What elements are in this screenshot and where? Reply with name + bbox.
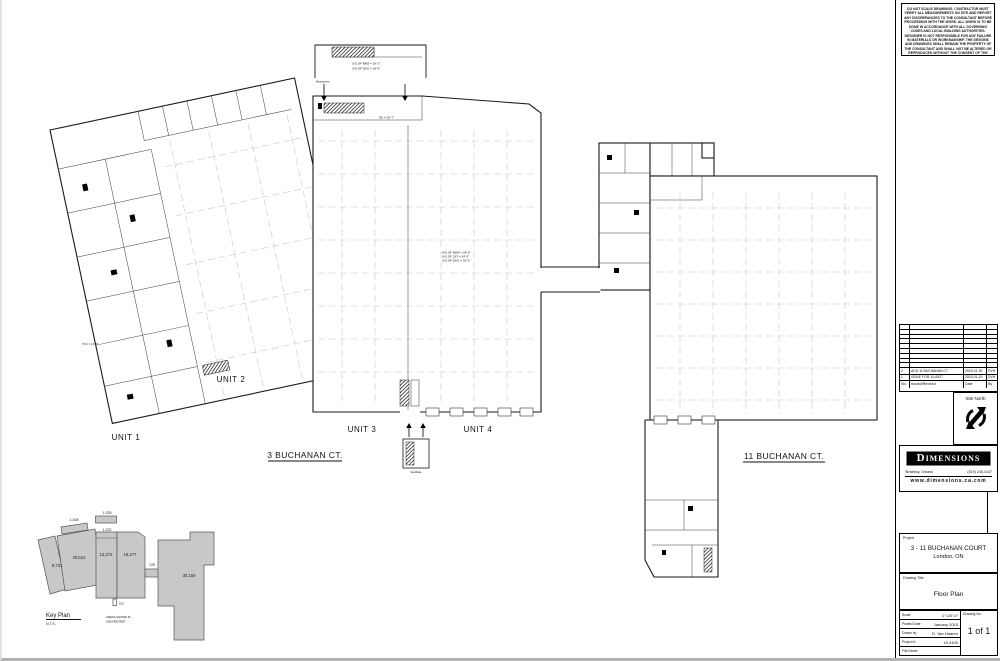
info-row-drawn: Drawn by D. Van Haaren — [900, 629, 960, 638]
area-mezz-a: 1,408 — [70, 518, 79, 522]
area-unit4: 19,477 — [124, 552, 137, 557]
scale-figure-icon — [113, 599, 117, 606]
project-label: Project — [903, 536, 994, 540]
building-11-buchanan — [599, 143, 877, 577]
drawing-title-box: Drawing Title Floor Plan — [899, 573, 998, 610]
revisions-header-no: No. — [900, 381, 909, 388]
mezzanine-note-1: U/S OF BMS = 19'-2" — [352, 62, 380, 66]
info-row-file: File Name — [900, 647, 960, 655]
areas-note-line2: SQUARE FEET — [106, 620, 126, 624]
firm-phone: (519) 245-4147 — [967, 470, 992, 474]
info-row-project-no: Project # 15-4100 — [900, 638, 960, 647]
unit3-label: UNIT 3 — [348, 425, 377, 434]
project-no-value: 15-4100 — [943, 640, 958, 645]
plotted-label: Plotted Date — [902, 622, 921, 626]
key-plan-title: Key Plan — [46, 613, 70, 619]
info-row-scale: Scale 1"=20'-0" — [900, 611, 960, 620]
info-row-plotted: Plotted Date January 2015 — [900, 620, 960, 629]
area-mezz-b: 1,035 — [103, 511, 112, 515]
mezzanine-note-2: U/S OF DKG = 18'-0" — [352, 67, 380, 71]
scale-figure-label: 150 — [119, 602, 124, 606]
firm-city: Strathroy, Ontario — [905, 470, 933, 474]
mezzanine-detail: U/S OF BMS = 19'-2" U/S OF DKG = 18'-0" … — [315, 45, 426, 101]
address-3-buchanan: 3 BUCHANAN CT. — [267, 450, 343, 460]
disclaimer-box: DO NOT SCALE DRAWINGS. CONTRACTOR MUST V… — [901, 3, 995, 56]
joist-note: TOJ = 16'-7" — [82, 342, 99, 346]
area-building11: 30,159 — [183, 573, 196, 578]
vestibule-label: Vestibule — [410, 470, 422, 474]
revisions-header-by: By — [986, 381, 997, 388]
project-name: 3 - 11 BUCHANAN COURT — [903, 545, 994, 552]
revisions-header-issued: Issued/Revised — [909, 381, 963, 388]
key-plan: 8,731 20,624 13,372 19,477 725 30,159 1,… — [38, 511, 214, 640]
area-unit3: 13,372 — [100, 552, 113, 557]
mezzanine-label: Mezzanine — [316, 80, 330, 84]
info-table: Scale 1"=20'-0" Plotted Date January 201… — [899, 610, 998, 656]
titleblock-edge-line — [987, 490, 988, 534]
drawing-no-value: 1 of 1 — [961, 626, 997, 636]
drawing-sheet: U/S OF BMS = 19'-2" U/S OF DKG = 18'-0" … — [0, 0, 1000, 661]
revisions-table: 2 ADD 11 BUCHANAN CT 2015-01-30 DVH 1 IS… — [899, 324, 998, 392]
scale-value: 1"=20'-0" — [942, 613, 958, 618]
floor-plan-drawing: U/S OF BMS = 19'-2" U/S OF DKG = 18'-0" … — [2, 0, 895, 661]
project-box: Project 3 - 11 BUCHANAN COURT London, ON — [899, 533, 998, 573]
revisions-header-date: Date — [963, 381, 986, 388]
key-plan-scale: N.T.S. — [46, 622, 56, 626]
project-no-label: Project # — [902, 640, 915, 644]
firm-logo-box: Dimensions Strathroy, Ontario (519) 245-… — [899, 445, 998, 492]
revisions-header-row: No. Issued/Revised Date By — [900, 380, 997, 388]
area-mezz-c: 1,022 — [103, 528, 112, 532]
drawn-label: Drawn by — [902, 631, 916, 635]
unit1-label: UNIT 1 — [112, 433, 141, 442]
plotted-value: January 2015 — [934, 622, 958, 627]
file-label: File Name — [902, 649, 917, 653]
site-north-box: Site North — [953, 392, 998, 445]
drawing-no-label: Drawing No. — [961, 611, 997, 617]
drawn-value: D. Van Haaren — [932, 631, 958, 636]
drawing-title: Floor Plan — [903, 591, 994, 598]
center-note-3: U/S OF DKG = 25'-0" — [442, 259, 470, 263]
unit4-label: UNIT 4 — [464, 425, 493, 434]
building-3-buchanan-main — [313, 96, 542, 416]
drawing-title-label: Drawing Title — [903, 576, 994, 580]
area-link: 725 — [149, 563, 155, 567]
deck-note: DK = 19'-7" — [379, 116, 394, 120]
area-office-wing: 8,731 — [52, 563, 63, 568]
link-corridor — [541, 267, 601, 292]
firm-website: www.dimensions.ca.com — [905, 478, 992, 484]
areas-note-line1: AREAS SHOWN IN — [106, 615, 131, 619]
drawing-no-cell: Drawing No. 1 of 1 — [960, 611, 997, 655]
address-11-buchanan: 11 BUCHANAN CT. — [744, 451, 824, 461]
building-3-buchanan-west-wing — [50, 78, 357, 423]
dimensions-logo: Dimensions — [905, 450, 992, 467]
project-city: London, ON — [903, 554, 994, 560]
site-north-label: Site North — [954, 396, 997, 401]
scale-label: Scale — [902, 613, 910, 617]
vestibule-detail: Vestibule — [403, 423, 429, 474]
unit2-label: UNIT 2 — [217, 375, 246, 384]
north-arrow-icon — [963, 405, 989, 431]
area-unit2: 20,624 — [73, 555, 86, 560]
titleblock-divider — [895, 0, 896, 661]
